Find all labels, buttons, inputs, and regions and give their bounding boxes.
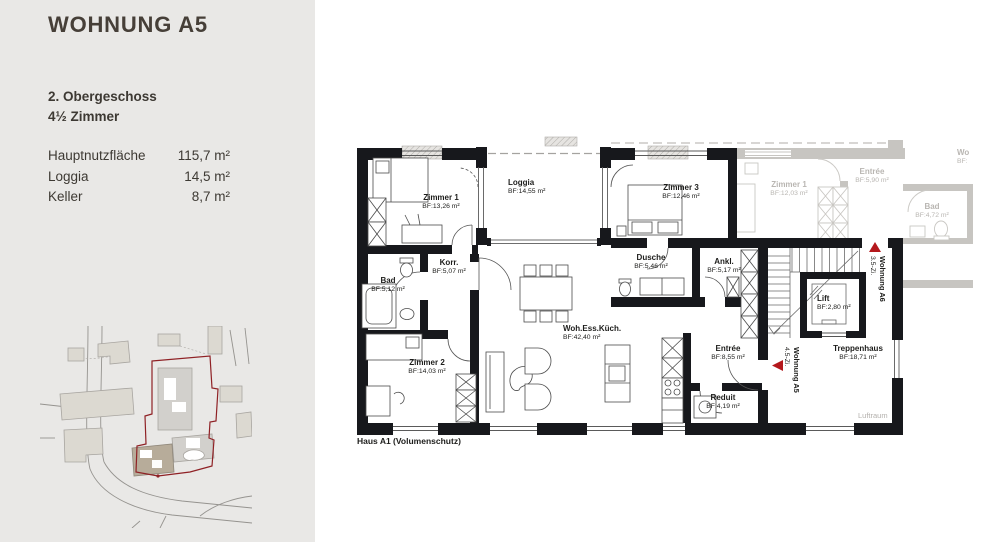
room-label-dusche: Dusche BF:5,46 m² [634, 253, 668, 272]
wohnung-a6-marker-type: 3.5-Zi. [869, 256, 876, 275]
site-boundary-point [156, 474, 159, 477]
page-title: WOHNUNG A5 [48, 12, 208, 38]
wohnung-a6-marker: Wohnung A6 [878, 256, 887, 302]
metric-label: Hauptnutzfläche [48, 146, 146, 167]
metric-row: Hauptnutzfläche 115,7 m² [48, 146, 230, 167]
furniture-zimmer2 [366, 334, 476, 422]
wohnung-a6-arrow-icon [869, 242, 881, 252]
room-label-reduit: Reduit BF:4,19 m² [706, 393, 740, 412]
room-label-zimmer2: Zimmer 2 BF:14,03 m² [408, 358, 445, 377]
room-label-loggia: Loggia BF:14,55 m² [508, 178, 545, 197]
site-subject-building [132, 444, 174, 476]
metric-row: Keller 8,7 m² [48, 187, 230, 208]
floor-line: 2. Obergeschoss [48, 87, 157, 107]
room-label-zimmer3: Zimmer 3 BF:12,46 m² [662, 183, 699, 202]
neighbor-label-bad: Bad BF:4,72 m² [915, 202, 949, 221]
neighbor-label-entree: Entrée BF:5,90 m² [855, 167, 889, 186]
room-label-korr: Korr. BF:5,07 m² [432, 258, 466, 277]
furniture-dining [520, 265, 572, 322]
wohnung-a5-arrow-icon [772, 360, 783, 371]
site-buildings [60, 326, 252, 462]
room-label-zimmer1: Zimmer 1 BF:13,26 m² [422, 193, 459, 212]
metric-label: Keller [48, 187, 83, 208]
wohnung-a5-marker-type: 4.5-Zi. [783, 347, 790, 366]
neighbor-label-cut: Wo BF: [957, 148, 969, 167]
site-plan [40, 326, 252, 528]
furniture-dusche [619, 278, 684, 296]
furniture-living [486, 348, 551, 412]
loggia-edges [487, 154, 601, 247]
area-metrics: Hauptnutzfläche 115,7 m² Loggia 14,5 m² … [48, 146, 230, 208]
metric-value: 8,7 m² [192, 187, 230, 208]
room-label-ankl: Ankl. BF:5,17 m² [707, 257, 741, 276]
metric-value: 115,7 m² [178, 146, 230, 167]
luftraum-label: Luftraum [858, 411, 888, 420]
floor-info: 2. Obergeschoss 4½ Zimmer [48, 87, 157, 127]
wohnung-a5-marker: Wohnung A5 [792, 347, 801, 393]
room-label-bad: Bad BF:5,12 m² [371, 276, 405, 295]
neighbor-balcony-edge [900, 280, 973, 288]
room-label-wohnen: Woh.Ess.Küch. BF:42,40 m² [563, 324, 621, 343]
room-label-lift: Lift BF:2,80 m² [817, 294, 851, 313]
furniture-kitchen [605, 338, 683, 423]
room-label-treppenhaus: Treppenhaus BF:18,71 m² [833, 344, 883, 363]
neighbor-furniture [735, 163, 848, 241]
metric-label: Loggia [48, 167, 89, 188]
site-parcel-lines [74, 346, 206, 359]
room-label-entree: Entrée BF:8,55 m² [711, 344, 745, 363]
sidebar: WOHNUNG A5 2. Obergeschoss 4½ Zimmer Hau… [0, 0, 315, 542]
metric-value: 14,5 m² [184, 167, 230, 188]
plan-footnote: Haus A1 (Volumenschutz) [357, 436, 461, 446]
metric-row: Loggia 14,5 m² [48, 167, 230, 188]
neighbor-label-zimmer1: Zimmer 1 BF:12,03 m² [770, 180, 807, 199]
rooms-line: 4½ Zimmer [48, 107, 157, 127]
